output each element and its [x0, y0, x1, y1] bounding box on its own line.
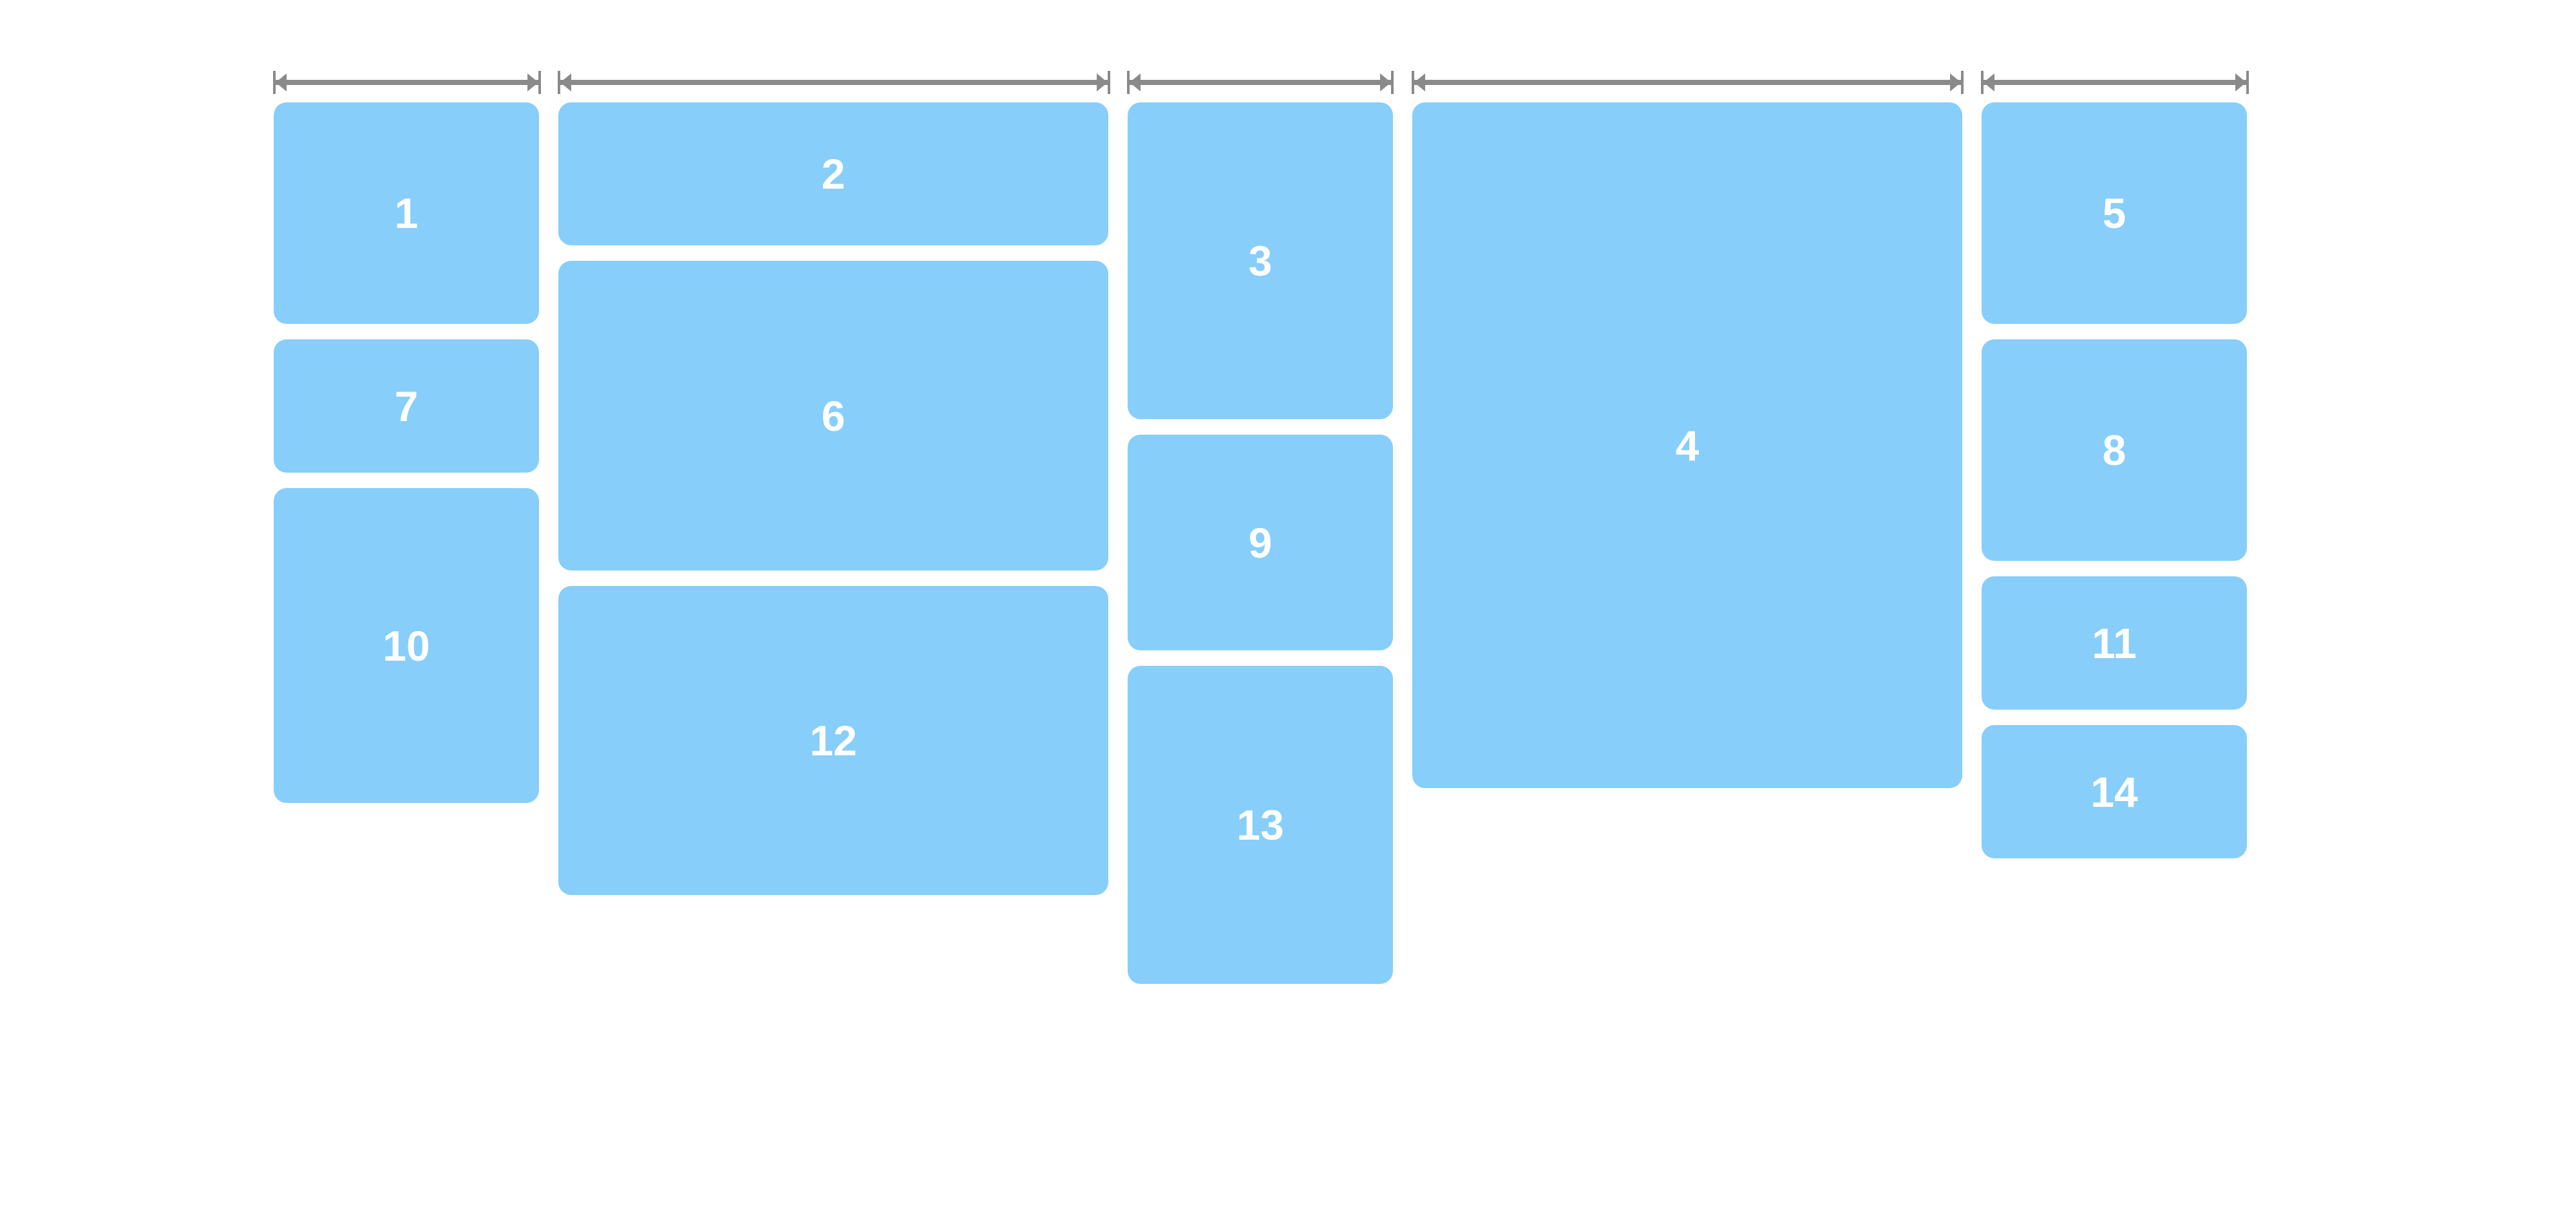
ruler-segment-column-3-width — [1127, 71, 1394, 94]
grid-item-label: 2 — [822, 153, 846, 195]
grid-item-13: 13 — [1128, 666, 1393, 984]
ruler-end-tick — [2246, 71, 2249, 94]
grid-item-label: 13 — [1236, 804, 1283, 846]
ruler-arrowhead-right — [2235, 73, 2246, 91]
grid-item-label: 11 — [2092, 622, 2137, 665]
ruler-line — [274, 80, 540, 85]
ruler-segment-column-1-width — [273, 71, 541, 94]
grid-item-2: 2 — [558, 102, 1108, 245]
ruler-arrowhead-right — [527, 73, 538, 91]
ruler-line — [559, 80, 1109, 85]
grid-item-11: 11 — [1982, 576, 2247, 710]
masonry-layout-diagram: 1234567891011121314 — [0, 0, 2576, 1208]
ruler-arrowhead-left — [1984, 73, 1994, 91]
grid-item-label: 10 — [383, 625, 430, 667]
grid-item-8: 8 — [1982, 339, 2247, 561]
grid-item-10: 10 — [274, 488, 539, 803]
ruler-arrowhead-left — [1414, 73, 1425, 91]
grid-item-label: 12 — [810, 719, 857, 762]
ruler-arrowhead-left — [1130, 73, 1141, 91]
ruler-line — [1413, 80, 1962, 85]
ruler-end-tick — [1961, 71, 1964, 94]
ruler-end-tick — [1391, 71, 1394, 94]
grid-item-1: 1 — [274, 102, 539, 324]
grid-item-label: 7 — [395, 385, 419, 428]
grid-item-label: 6 — [822, 395, 846, 437]
ruler-arrowhead-right — [1380, 73, 1391, 91]
grid-item-label: 9 — [1249, 522, 1273, 564]
grid-item-4: 4 — [1412, 102, 1962, 788]
grid-item-9: 9 — [1128, 435, 1393, 650]
ruler-line — [1128, 80, 1392, 85]
grid-item-12: 12 — [558, 586, 1108, 895]
ruler-end-tick — [538, 71, 541, 94]
grid-item-3: 3 — [1128, 102, 1393, 419]
grid-item-label: 8 — [2103, 429, 2126, 471]
ruler-segment-column-5-width — [1981, 71, 2249, 94]
ruler-arrowhead-right — [1097, 73, 1108, 91]
grid-item-label: 1 — [395, 192, 419, 234]
grid-item-6: 6 — [558, 261, 1108, 571]
grid-item-label: 14 — [2090, 771, 2137, 813]
ruler-arrowhead-left — [560, 73, 571, 91]
grid-item-label: 5 — [2103, 192, 2126, 234]
grid-item-label: 3 — [1249, 240, 1273, 282]
grid-item-5: 5 — [1982, 102, 2247, 324]
ruler-segment-column-4-width — [1412, 71, 1964, 94]
grid-item-label: 4 — [1676, 424, 1700, 467]
ruler-line — [1982, 80, 2248, 85]
ruler-end-tick — [1108, 71, 1110, 94]
grid-item-14: 14 — [1982, 725, 2247, 858]
ruler-segment-column-2-width — [558, 71, 1110, 94]
grid-item-7: 7 — [274, 339, 539, 473]
ruler-arrowhead-left — [276, 73, 287, 91]
ruler-arrowhead-right — [1950, 73, 1961, 91]
